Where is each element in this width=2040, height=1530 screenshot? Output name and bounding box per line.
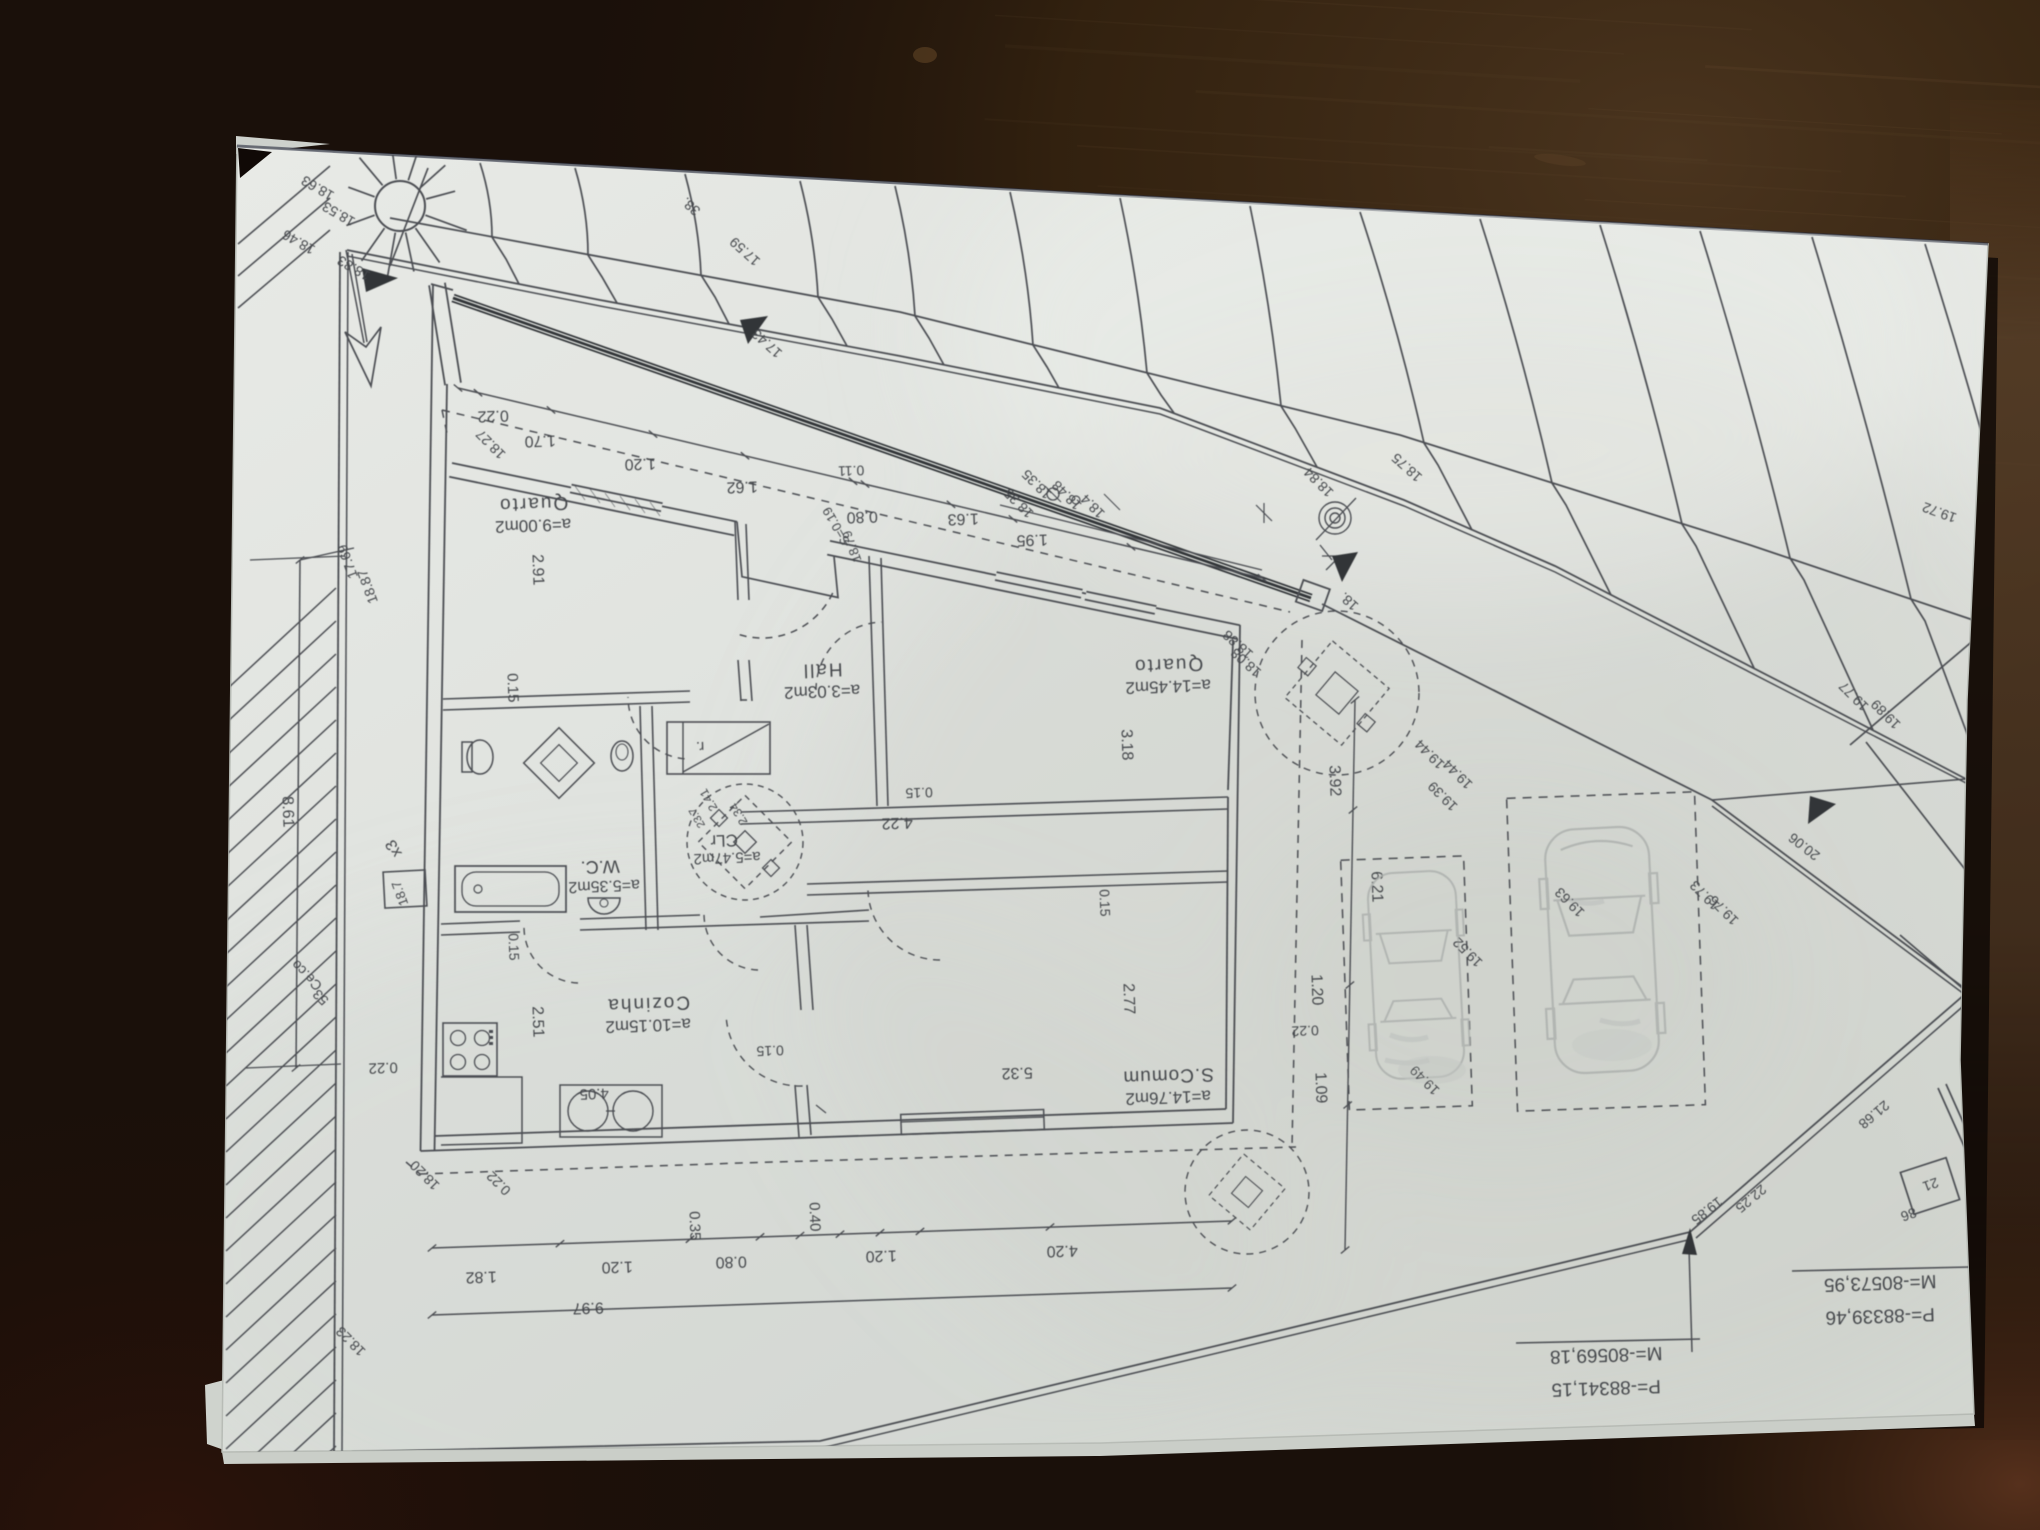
svg-text:0.15: 0.15	[756, 1043, 784, 1060]
svg-text:4.05: 4.05	[579, 1084, 609, 1102]
svg-text:0.15: 0.15	[506, 933, 523, 961]
svg-text:Cozinha: Cozinha	[606, 992, 690, 1016]
svg-text:M=-80573,95: M=-80573,95	[1824, 1270, 1937, 1295]
svg-text:a=10.15m2: a=10.15m2	[605, 1015, 691, 1037]
svg-text:3.92: 3.92	[1325, 765, 1343, 797]
svg-text:1.09: 1.09	[1311, 1072, 1329, 1104]
svg-text:0.22: 0.22	[477, 406, 509, 424]
svg-text:1.62: 1.62	[726, 477, 758, 495]
svg-text:8.61: 8.61	[278, 796, 296, 828]
svg-text:CLr: CLr	[710, 831, 738, 851]
svg-text:1.20: 1.20	[624, 454, 656, 472]
svg-text:S.Comum: S.Comum	[1122, 1063, 1214, 1087]
svg-text:0.15: 0.15	[1097, 889, 1114, 917]
svg-text:a=9.00m2: a=9.00m2	[495, 515, 572, 537]
svg-text:3.18: 3.18	[1117, 729, 1135, 761]
svg-text:0.40: 0.40	[805, 1202, 823, 1232]
svg-text:Quarto: Quarto	[498, 492, 569, 515]
svg-text:r.: r.	[696, 738, 705, 755]
svg-text:0.80: 0.80	[715, 1252, 747, 1270]
svg-text:1.63: 1.63	[947, 509, 979, 527]
svg-text:1.20: 1.20	[1307, 974, 1325, 1006]
svg-text:Hall: Hall	[801, 658, 842, 680]
svg-text:a=14.45m2: a=14.45m2	[1125, 676, 1211, 698]
svg-text:9.97: 9.97	[572, 1298, 604, 1316]
svg-text:a=3.03m2: a=3.03m2	[784, 681, 861, 703]
svg-text:0.22: 0.22	[368, 1058, 398, 1076]
svg-text:2.51: 2.51	[528, 1006, 546, 1038]
svg-text:a=5.47m2: a=5.47m2	[693, 848, 761, 867]
svg-text:1.20: 1.20	[865, 1246, 897, 1264]
svg-text:P=-88341,15: P=-88341,15	[1551, 1375, 1661, 1400]
svg-text:1.70: 1.70	[524, 431, 556, 449]
svg-text:1.82: 1.82	[465, 1267, 497, 1285]
svg-text:a=5.35m2: a=5.35m2	[568, 876, 640, 895]
svg-text:2.77: 2.77	[1119, 983, 1137, 1015]
svg-text:4.22: 4.22	[881, 813, 913, 831]
svg-text:a=14.76m2: a=14.76m2	[1125, 1087, 1211, 1109]
svg-text:0.15: 0.15	[905, 785, 933, 802]
svg-text:1.95: 1.95	[1016, 530, 1048, 548]
svg-text:0.35: 0.35	[685, 1211, 703, 1241]
svg-text:0.15: 0.15	[503, 673, 521, 703]
svg-text:0.80: 0.80	[846, 507, 878, 525]
svg-text:W.C.: W.C.	[580, 856, 620, 877]
svg-text:P=-88339,46: P=-88339,46	[1825, 1303, 1935, 1328]
svg-text:0.11: 0.11	[838, 463, 865, 480]
svg-text:0.22: 0.22	[1291, 1023, 1319, 1040]
svg-text:2.91: 2.91	[528, 554, 546, 586]
svg-text:4.20: 4.20	[1046, 1241, 1078, 1259]
svg-text:1.20: 1.20	[601, 1257, 633, 1275]
svg-text:M=-80569,18: M=-80569,18	[1550, 1342, 1663, 1367]
svg-text:5.32: 5.32	[1001, 1063, 1033, 1081]
svg-text:Quarto: Quarto	[1133, 653, 1204, 676]
